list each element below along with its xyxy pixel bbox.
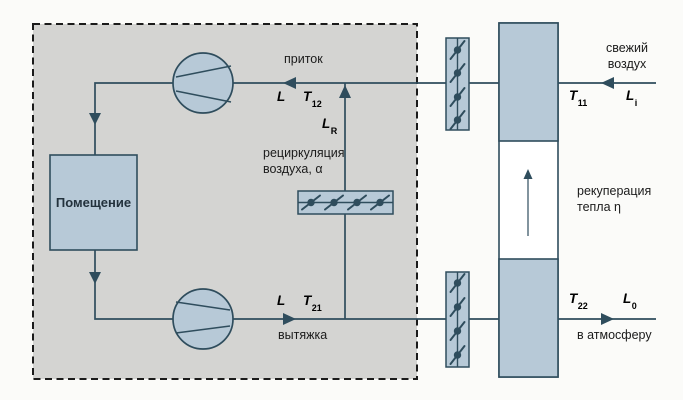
exhaust-fan-icon (173, 289, 233, 349)
outlet-temperature-symbol: T22 (569, 291, 587, 309)
exhaust-t-base: T (303, 293, 311, 308)
fresh-t-sub: 11 (578, 98, 588, 108)
room-label: Помещение (50, 155, 137, 250)
outlet-airflow-symbol: L0 (623, 291, 636, 309)
fresh-l-sub: i (635, 98, 638, 108)
supply-damper-icon (446, 38, 469, 130)
supply-airflow-symbol: L (277, 89, 285, 104)
fresh-t-base: T (569, 88, 577, 103)
supply-temperature-symbol: T12 (303, 89, 321, 107)
recirc-caption-line1: рециркуляция (263, 145, 345, 161)
exhaust-t-sub: 21 (312, 303, 322, 313)
exhaust-damper-icon (446, 272, 469, 367)
outlet-t-sub: 22 (578, 301, 588, 311)
recirculation-caption: рециркуляция воздуха, α (263, 145, 345, 177)
recirc-l-sub: R (331, 126, 338, 136)
fresh-air-flow-arrow-icon (601, 77, 614, 89)
fresh-air-airflow-symbol: Li (626, 88, 637, 106)
supply-t-base: T (303, 89, 311, 104)
supply-t-sub: 12 (312, 99, 322, 109)
recovery-caption-line1: рекуперация (577, 183, 651, 199)
exhaust-flow-label: вытяжка (278, 328, 327, 343)
heat-recovery-caption: рекуперация тепла η (577, 183, 651, 215)
exhaust-airflow-symbol: L (277, 293, 285, 308)
fresh-air-temperature-symbol: T11 (569, 88, 587, 106)
recirculation-airflow-symbol: LR (322, 116, 337, 134)
recirculation-damper-icon (298, 191, 393, 214)
outlet-l-sub: 0 (632, 301, 637, 311)
supply-fan-icon (173, 53, 233, 113)
supply-l: L (277, 89, 285, 104)
supply-flow-label: приток (284, 52, 323, 67)
fresh-air-caption: свежий воздух (596, 40, 658, 72)
fresh-air-caption-line2: воздух (596, 56, 658, 72)
outlet-t-base: T (569, 291, 577, 306)
fresh-air-caption-line1: свежий (596, 40, 658, 56)
exhaust-temperature-symbol: T21 (303, 293, 321, 311)
ventilation-scheme: Помещение приток L T12 LR рециркуляция в… (0, 0, 683, 400)
fresh-l-base: L (626, 88, 634, 103)
exhaust-l: L (277, 293, 285, 308)
to-atmosphere-label: в атмосферу (577, 328, 652, 343)
recirc-caption-line2: воздуха, α (263, 161, 345, 177)
recovery-caption-line2: тепла η (577, 199, 651, 215)
atmosphere-flow-arrow-icon (601, 313, 614, 325)
recirc-l-base: L (322, 116, 330, 131)
heat-recovery-unit (499, 23, 558, 377)
outlet-l-base: L (623, 291, 631, 306)
